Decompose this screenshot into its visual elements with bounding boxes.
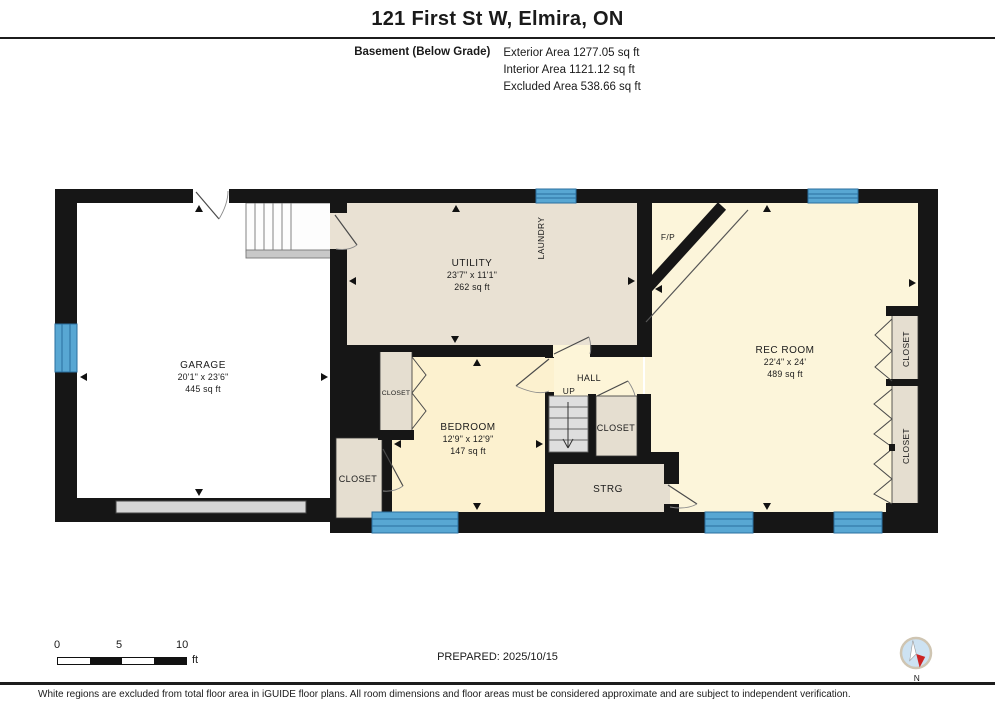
bedroom-area: 147 sq ft [450, 446, 486, 456]
closet-hall-label: CLOSET [597, 423, 636, 433]
closet-right-upper-label: CLOSET [901, 331, 911, 367]
storage-label: STRG [593, 484, 623, 495]
closet-right-lower-label: CLOSET [901, 428, 911, 464]
scale-tick-5: 5 [116, 639, 122, 651]
garage-dims: 20'1" x 23'6" [178, 372, 229, 382]
garage-label: GARAGE [180, 360, 226, 371]
window-rec-bottom-2 [834, 512, 882, 533]
wall-top [55, 189, 937, 203]
prepared-date: PREPARED: 2025/10/15 [0, 651, 995, 663]
disclaimer-text: White regions are excluded from total fl… [38, 689, 968, 700]
window-rec-bottom-1 [705, 512, 753, 533]
window-rec-top [808, 189, 858, 203]
hall-label: HALL [577, 373, 601, 383]
garage-door [116, 501, 306, 513]
bedroom-label: BEDROOM [440, 422, 495, 433]
up-label: UP [563, 386, 575, 396]
closet-left-lower-label: CLOSET [339, 474, 378, 484]
fireplace-label: F/P [661, 232, 675, 242]
closet-left-upper-label: CLOSET [382, 390, 410, 397]
scale-tick-10: 10 [176, 639, 188, 651]
wall-stairs-closet [588, 394, 596, 458]
utility-dims: 23'7" x 11'1" [447, 270, 497, 280]
utility-label: UTILITY [452, 258, 493, 269]
wall-right [918, 189, 938, 533]
scale-tick-0: 0 [54, 639, 60, 651]
garage-area: 445 sq ft [185, 384, 221, 394]
rec-room-area: 489 sq ft [767, 369, 803, 379]
utility-area: 262 sq ft [454, 282, 490, 292]
rec-room-label: REC ROOM [756, 345, 815, 356]
window-garage-left [55, 324, 77, 372]
wall-closet-rec [637, 394, 651, 460]
footer-divider [0, 682, 995, 685]
wall-utility-rec [637, 189, 652, 357]
hall-stairs [549, 396, 588, 452]
wall-utility-bottom [388, 345, 652, 357]
compass: N [894, 631, 940, 683]
rec-room-dims: 22'4" x 24' [764, 357, 807, 367]
wall-storage-right [664, 452, 679, 484]
floor-plan: GARAGE 20'1" x 23'6" 445 sq ft UTILITY 2… [0, 0, 995, 720]
garage-stairs [246, 203, 332, 258]
wall-storage-stub [664, 504, 679, 514]
bedroom-dims: 12'9" x 12'9" [443, 434, 494, 444]
window-utility-top [536, 189, 576, 203]
laundry-label: LAUNDRY [536, 217, 546, 260]
window-bedroom-bottom [372, 512, 458, 533]
